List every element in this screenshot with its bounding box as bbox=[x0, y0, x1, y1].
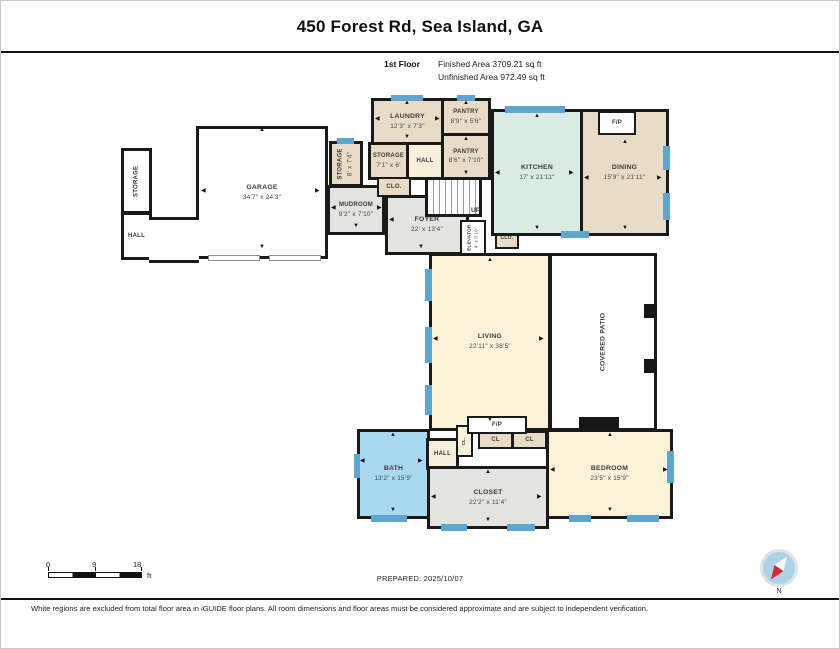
compass-icon bbox=[760, 549, 798, 587]
window bbox=[425, 385, 432, 415]
dimension-arrow: ▼ bbox=[418, 244, 424, 250]
room-living: LIVING22'11" x 38'5" bbox=[429, 253, 551, 431]
dimension-arrow: ▲ bbox=[607, 432, 613, 438]
dimension-arrow: ▶ bbox=[657, 175, 662, 181]
window bbox=[441, 524, 467, 531]
stairs-up-label: UP bbox=[471, 207, 480, 214]
dimension-arrow: ▼ bbox=[622, 225, 628, 231]
dimension-arrow: ▲ bbox=[463, 136, 469, 142]
dimension-arrow: ▶ bbox=[435, 116, 440, 122]
window bbox=[561, 231, 589, 238]
window bbox=[507, 524, 535, 531]
floor-plan: STORAGE HALL GARAGE34'7" x 24'3" STORAGE… bbox=[1, 1, 840, 649]
window bbox=[425, 327, 432, 363]
dimension-arrow: ▼ bbox=[487, 417, 493, 423]
dimension-arrow: ◀ bbox=[433, 336, 438, 342]
dimension-arrow: ◀ bbox=[389, 217, 394, 223]
patio-pier bbox=[579, 417, 619, 431]
garage-door bbox=[269, 255, 321, 261]
dimension-arrow: ▲ bbox=[463, 100, 469, 106]
window bbox=[337, 138, 354, 144]
dimension-arrow: ▶ bbox=[315, 188, 320, 194]
dimension-arrow: ▼ bbox=[534, 225, 540, 231]
scale-tickmark bbox=[141, 567, 142, 571]
dimension-arrow: ▲ bbox=[534, 113, 540, 119]
dimension-arrow: ▲ bbox=[404, 100, 410, 106]
dimension-arrow: ▲ bbox=[485, 469, 491, 475]
window bbox=[663, 146, 670, 170]
garage-door bbox=[208, 255, 260, 261]
dimension-arrow: ▲ bbox=[390, 432, 396, 438]
dimension-arrow: ▼ bbox=[404, 134, 410, 140]
fireplace-living: F/P bbox=[467, 416, 527, 434]
dimension-arrow: ◀ bbox=[375, 116, 380, 122]
floor-plan-page: 450 Forest Rd, Sea Island, GA 1st Floor … bbox=[0, 0, 840, 649]
dimension-arrow: ▶ bbox=[569, 170, 574, 176]
room-hall-left: HALL bbox=[121, 212, 152, 260]
room-hall-upper: HALL bbox=[406, 142, 444, 180]
dimension-arrow: ▼ bbox=[353, 223, 359, 229]
window bbox=[663, 193, 670, 220]
window bbox=[425, 269, 432, 301]
window bbox=[627, 515, 659, 522]
dimension-arrow: ▲ bbox=[622, 139, 628, 145]
compass-north-label: N bbox=[760, 588, 798, 595]
dimension-arrow: ▶ bbox=[377, 205, 382, 211]
dimension-arrow: ◀ bbox=[584, 175, 589, 181]
patio-column bbox=[644, 304, 657, 318]
window bbox=[505, 106, 565, 113]
fireplace-dining: F/P bbox=[598, 111, 636, 135]
room-storage-inner: STORAGE7'1" x 6' bbox=[368, 142, 409, 180]
dimension-arrow: ▼ bbox=[259, 244, 265, 250]
dimension-arrow: ◀ bbox=[360, 458, 365, 464]
dimension-arrow: ▲ bbox=[259, 127, 265, 133]
room-covered-patio: COVERED PATIO bbox=[549, 253, 657, 431]
room-storage-left: STORAGE bbox=[121, 148, 152, 214]
room-bedroom: BEDROOM23'5" x 15'9" bbox=[546, 429, 673, 519]
patio-column bbox=[644, 359, 657, 373]
dimension-arrow: ◀ bbox=[431, 494, 436, 500]
hall-corridor bbox=[149, 217, 199, 263]
dimension-arrow: ▼ bbox=[485, 517, 491, 523]
room-storage-side: STORAGE8' x 7'4" bbox=[329, 141, 363, 187]
room-garage: GARAGE34'7" x 24'3" bbox=[196, 126, 328, 259]
footer-divider bbox=[1, 598, 839, 600]
dimension-arrow: ▼ bbox=[390, 507, 396, 513]
room-bath: BATH13'2" x 15'9" bbox=[357, 429, 430, 519]
dimension-arrow: ◀ bbox=[495, 170, 500, 176]
dimension-arrow: ◀ bbox=[331, 205, 336, 211]
scale-tickmark bbox=[48, 567, 49, 571]
dimension-arrow: ▶ bbox=[537, 494, 542, 500]
window bbox=[569, 515, 591, 522]
disclaimer-text: White regions are excluded from total fl… bbox=[31, 604, 811, 613]
scale-tickmark bbox=[95, 567, 96, 571]
dimension-arrow: ◀ bbox=[550, 467, 555, 473]
room-elevator: ELEVATOR4' x 5'10" bbox=[460, 220, 486, 255]
dimension-arrow: ▲ bbox=[487, 257, 493, 263]
dimension-arrow: ▶ bbox=[663, 467, 668, 473]
dimension-arrow: ◀ bbox=[201, 188, 206, 194]
room-closet-upper: CLO. bbox=[377, 177, 411, 197]
dimension-arrow: ▼ bbox=[463, 170, 469, 176]
window bbox=[371, 515, 407, 522]
dimension-arrow: ▼ bbox=[607, 507, 613, 513]
prepared-date: PREPARED: 2025/10/07 bbox=[1, 574, 839, 583]
window bbox=[667, 451, 674, 483]
dimension-arrow: ▶ bbox=[539, 336, 544, 342]
dimension-arrow: ▶ bbox=[418, 458, 423, 464]
